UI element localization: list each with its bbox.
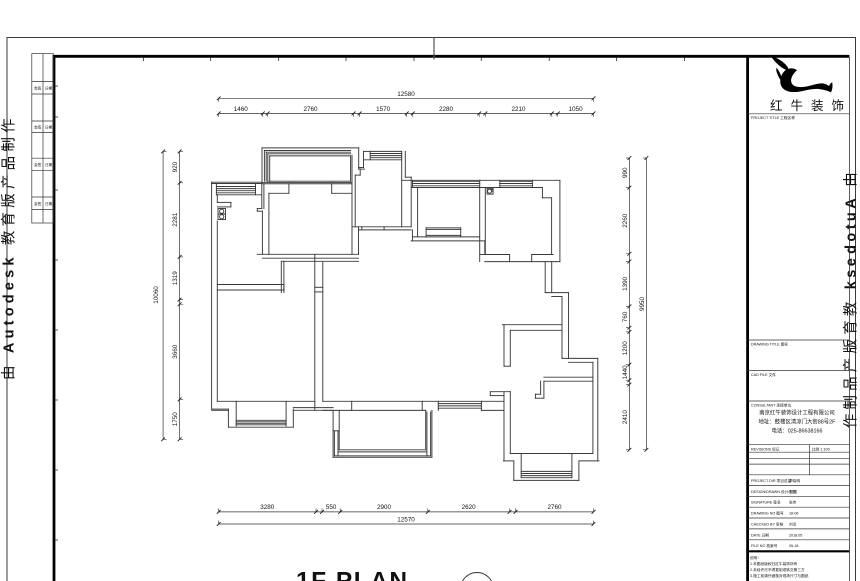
- svg-text:电话：025-86638166: 电话：025-86638166: [772, 427, 823, 435]
- svg-text:红牛装饰: 红牛装饰: [770, 98, 852, 113]
- svg-text:版: 版: [842, 339, 859, 354]
- svg-text:REVISIONS 标记: REVISIONS 标记: [751, 447, 780, 452]
- svg-text:1200: 1200: [622, 341, 629, 356]
- svg-text:品: 品: [842, 376, 859, 391]
- svg-text:2.未经许可不得复制或转交第三方: 2.未经许可不得复制或转交第三方: [750, 567, 805, 572]
- svg-text:3.施工前请仔细核对现场尺寸与图纸: 3.施工前请仔细核对现场尺寸与图纸: [750, 573, 809, 578]
- svg-text:日期: 日期: [45, 86, 53, 91]
- svg-text:SIGNATURE 签名: SIGNATURE 签名: [751, 500, 781, 505]
- svg-text:DATE 日期: DATE 日期: [751, 532, 769, 537]
- svg-text:CAD FILE 文件: CAD FILE 文件: [751, 372, 776, 377]
- svg-text:说明：: 说明：: [750, 555, 761, 560]
- svg-text:比例 1:100: 比例 1:100: [812, 447, 830, 452]
- svg-text:1050: 1050: [569, 106, 584, 113]
- svg-text:PROJECT TITLE 工程名称: PROJECT TITLE 工程名称: [751, 115, 795, 120]
- svg-text:会签: 会签: [34, 125, 42, 130]
- svg-text:760: 760: [622, 311, 629, 322]
- svg-text:k: k: [843, 280, 859, 289]
- svg-text:刘洋: 刘洋: [789, 521, 797, 526]
- svg-text:2410: 2410: [622, 410, 629, 425]
- svg-text:育: 育: [842, 320, 859, 335]
- svg-text:PROJECT DIR 项目总监: PROJECT DIR 项目总监: [751, 478, 792, 483]
- svg-text:1440: 1440: [622, 365, 629, 380]
- svg-text:1750: 1750: [172, 412, 179, 427]
- svg-text:2900: 2900: [377, 504, 392, 511]
- svg-text:s: s: [843, 270, 859, 278]
- svg-text:会签: 会签: [34, 86, 42, 91]
- svg-text:12570: 12570: [397, 516, 415, 523]
- svg-text:10060: 10060: [153, 286, 160, 304]
- svg-text:2018.05: 2018.05: [789, 533, 802, 537]
- svg-text:05-18: 05-18: [789, 544, 798, 548]
- svg-text:王芳: 王芳: [789, 489, 797, 494]
- svg-text:FILE NO 档案号: FILE NO 档案号: [751, 543, 778, 548]
- svg-text:日期: 日期: [45, 201, 53, 206]
- svg-text:t: t: [843, 224, 859, 229]
- svg-text:作: 作: [842, 414, 859, 429]
- svg-text:会签: 会签: [34, 201, 42, 206]
- svg-text:由 Autodesk 教育版产品制作: 由 Autodesk 教育版产品制作: [1, 114, 18, 380]
- svg-text:2281: 2281: [172, 212, 179, 227]
- svg-text:18-06: 18-06: [789, 512, 798, 516]
- svg-text:990: 990: [622, 167, 629, 178]
- svg-text:550: 550: [326, 504, 337, 511]
- svg-text:1F PLAN: 1F PLAN: [296, 568, 409, 581]
- svg-text:9950: 9950: [639, 297, 646, 312]
- svg-text:u: u: [843, 212, 859, 221]
- svg-text:日期: 日期: [45, 125, 53, 130]
- svg-text:2760: 2760: [303, 106, 318, 113]
- svg-text:3280: 3280: [260, 504, 275, 511]
- svg-text:1390: 1390: [622, 276, 629, 291]
- svg-text:920: 920: [172, 161, 179, 172]
- svg-text:A: A: [843, 198, 859, 209]
- svg-text:2760: 2760: [547, 504, 562, 511]
- svg-text:e: e: [843, 258, 859, 266]
- svg-text:产: 产: [842, 358, 859, 373]
- svg-text:o: o: [843, 233, 859, 242]
- svg-text:1570: 1570: [376, 106, 391, 113]
- svg-text:2260: 2260: [622, 213, 629, 228]
- svg-text:12580: 12580: [397, 91, 415, 98]
- svg-text:1.本图纸版权归红牛装饰所有: 1.本图纸版权归红牛装饰所有: [750, 561, 798, 566]
- svg-text:DRAWING TITLE 图名: DRAWING TITLE 图名: [751, 342, 788, 347]
- svg-text:CHECKED BY 审核: CHECKED BY 审核: [751, 521, 784, 526]
- svg-text:李晓明: 李晓明: [789, 478, 800, 483]
- svg-text:2210: 2210: [511, 106, 526, 113]
- svg-text:张伟: 张伟: [789, 500, 797, 505]
- svg-text:地址：鼓楼区清凉门大街88号2F: 地址：鼓楼区清凉门大街88号2F: [759, 418, 837, 426]
- svg-text:2280: 2280: [439, 106, 454, 113]
- svg-text:d: d: [843, 245, 859, 254]
- svg-text:会签: 会签: [34, 162, 42, 167]
- svg-text:2620: 2620: [462, 504, 477, 511]
- svg-text:CONSULTANT 承接单位: CONSULTANT 承接单位: [751, 403, 791, 408]
- svg-text:DRAWING NO 图号: DRAWING NO 图号: [751, 511, 784, 516]
- svg-text:日期: 日期: [45, 162, 53, 167]
- svg-text:制: 制: [842, 395, 859, 410]
- svg-text:3660: 3660: [172, 344, 179, 359]
- svg-text:南京红牛装饰设计工程有限公司: 南京红牛装饰设计工程有限公司: [759, 409, 834, 417]
- svg-text:1319: 1319: [172, 271, 179, 286]
- svg-text:由: 由: [842, 172, 859, 187]
- svg-text:1460: 1460: [234, 106, 249, 113]
- svg-text:教: 教: [842, 301, 859, 316]
